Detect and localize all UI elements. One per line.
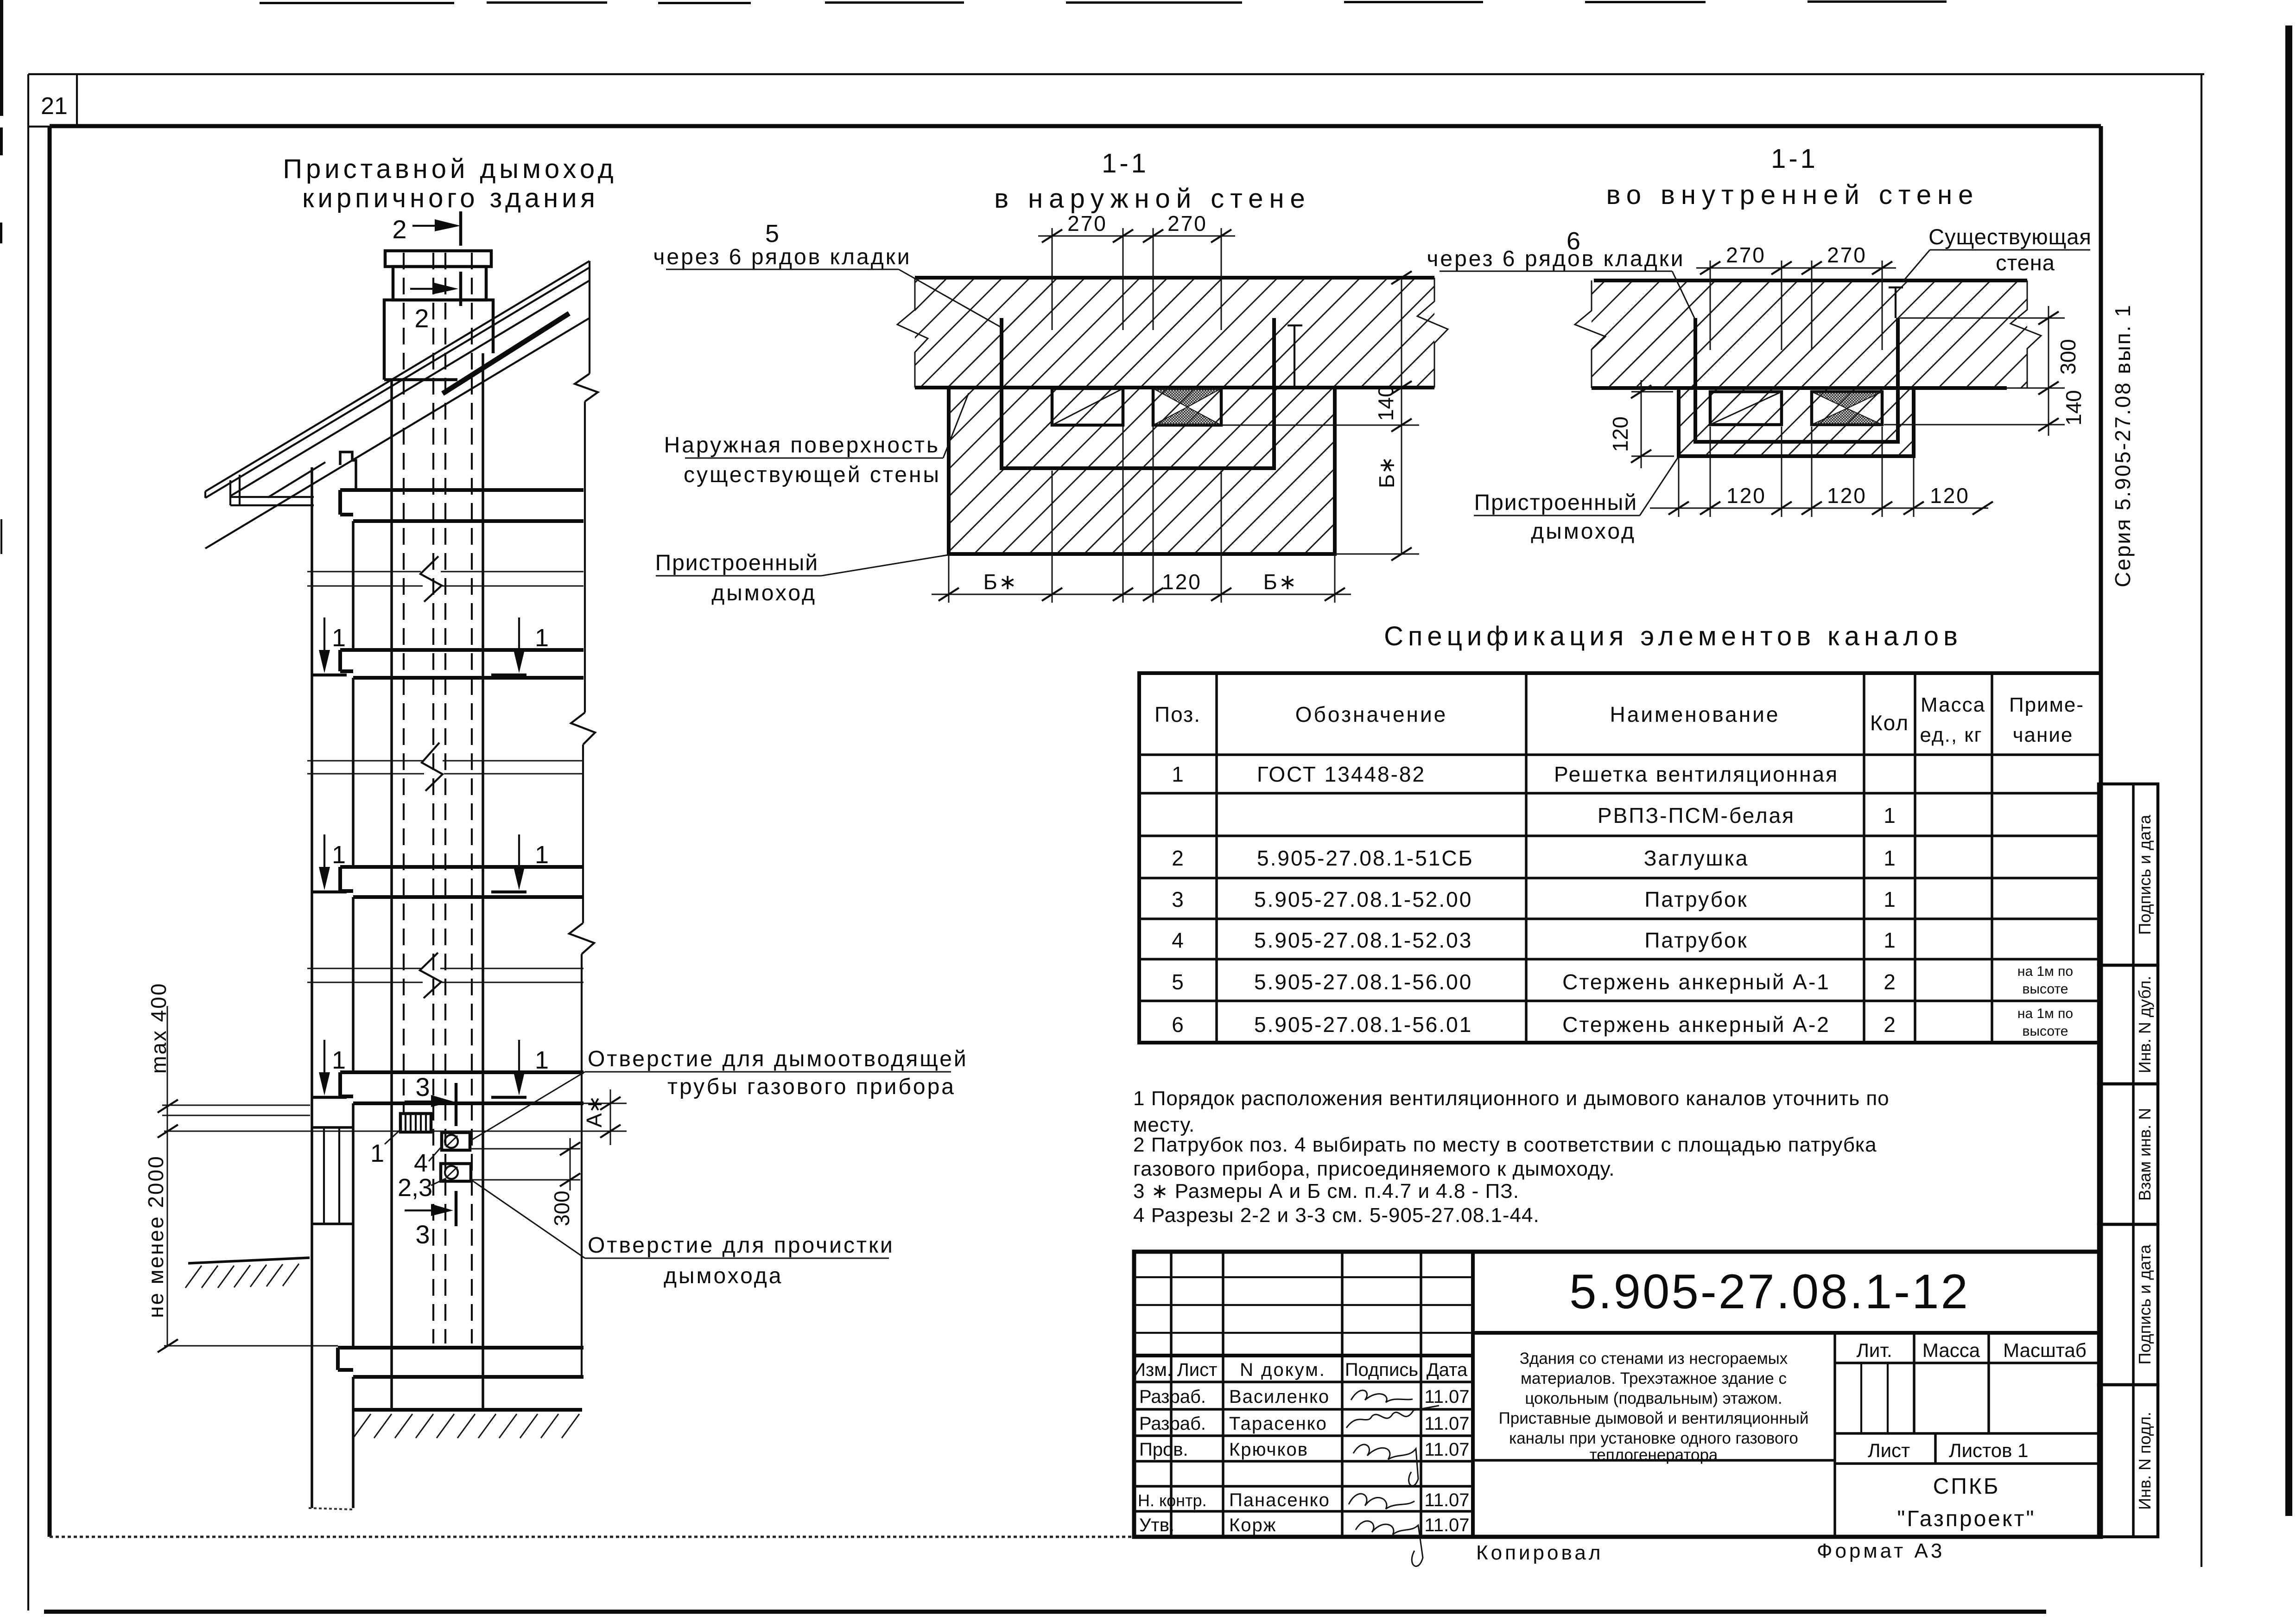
svg-text:Корж: Корж <box>1229 1515 1277 1535</box>
svg-text:дымоход: дымоход <box>711 581 817 605</box>
svg-text:11.07: 11.07 <box>1424 1515 1469 1535</box>
svg-text:120: 120 <box>1162 570 1202 594</box>
svg-text:Разраб.: Разраб. <box>1139 1387 1206 1407</box>
svg-text:1-1: 1-1 <box>1102 148 1149 178</box>
svg-text:высоте: высоте <box>2023 1024 2068 1039</box>
svg-text:Серия 5.905-27.08 вып. 1: Серия 5.905-27.08 вып. 1 <box>2111 304 2135 587</box>
svg-text:кирпичного здания: кирпичного здания <box>302 183 599 213</box>
svg-text:через 6 рядов кладки: через 6 рядов кладки <box>653 245 911 269</box>
svg-text:270: 270 <box>1726 243 1766 267</box>
svg-text:4: 4 <box>1172 928 1184 952</box>
svg-text:Крючков: Крючков <box>1229 1439 1308 1460</box>
svg-text:Подпись и дата: Подпись и дата <box>2135 1244 2154 1365</box>
svg-text:А∗: А∗ <box>582 1095 606 1127</box>
svg-text:Копировал: Копировал <box>1476 1541 1603 1564</box>
svg-text:не менее 2000: не менее 2000 <box>144 1155 168 1318</box>
svg-text:через 6 рядов кладки: через 6 рядов кладки <box>1427 247 1685 271</box>
svg-text:Спецификация элементов каналов: Спецификация элементов каналов <box>1384 621 1962 651</box>
svg-text:"Газпроект": "Газпроект" <box>1897 1507 2036 1531</box>
svg-text:на 1м по: на 1м по <box>2017 964 2073 979</box>
svg-text:Отверстие для прочистки: Отверстие для прочистки <box>588 1233 894 1258</box>
svg-text:2,3: 2,3 <box>398 1174 432 1202</box>
svg-text:Масса: Масса <box>1921 694 1985 716</box>
svg-text:5.905-27.08.1-56.00: 5.905-27.08.1-56.00 <box>1254 970 1472 994</box>
svg-text:1: 1 <box>535 1046 549 1074</box>
svg-text:Кол: Кол <box>1870 711 1909 735</box>
svg-text:Формат А3: Формат А3 <box>1817 1540 1945 1562</box>
svg-text:Листов 1: Листов 1 <box>1949 1439 2029 1461</box>
svg-text:1: 1 <box>332 1046 346 1074</box>
svg-text:чание: чание <box>2013 724 2074 746</box>
svg-text:11.07: 11.07 <box>1424 1490 1469 1510</box>
svg-text:Приме-: Приме- <box>2009 694 2084 716</box>
svg-text:Наименование: Наименование <box>1610 702 1780 726</box>
svg-text:1: 1 <box>1884 803 1896 828</box>
svg-text:Лит.: Лит. <box>1856 1339 1892 1361</box>
svg-text:Обозначение: Обозначение <box>1295 702 1448 726</box>
svg-text:Решетка вентиляционная: Решетка вентиляционная <box>1554 762 1839 786</box>
svg-text:5: 5 <box>765 220 779 248</box>
svg-text:газового прибора, присоединя: газового прибора, присоединяемого к дымо… <box>1133 1158 1615 1180</box>
svg-text:месту.: месту. <box>1133 1114 1195 1136</box>
svg-text:1: 1 <box>1884 887 1896 911</box>
svg-text:270: 270 <box>1827 243 1867 267</box>
svg-text:Б∗: Б∗ <box>1263 570 1298 594</box>
svg-text:140: 140 <box>1374 385 1398 421</box>
svg-text:Патрубок: Патрубок <box>1644 887 1748 911</box>
svg-text:Стержень анкерный А-1: Стержень анкерный А-1 <box>1562 970 1830 994</box>
svg-text:4: 4 <box>414 1149 428 1177</box>
svg-text:5.905-27.08.1-12: 5.905-27.08.1-12 <box>1569 1265 1970 1319</box>
svg-text:Стержень анкерный А-2: Стержень анкерный А-2 <box>1562 1012 1830 1037</box>
svg-text:Приставной дымоход: Приставной дымоход <box>283 154 617 184</box>
svg-text:140: 140 <box>2061 390 2086 426</box>
svg-text:11.07: 11.07 <box>1424 1439 1469 1460</box>
svg-text:существующей стены: существующей стены <box>684 463 941 487</box>
svg-text:3 ∗ Размеры А и Б см. п: 3 ∗ Размеры А и Б см. п.4.7 и 4.8 - ПЗ. <box>1133 1180 1519 1203</box>
svg-text:Пров.: Пров. <box>1139 1439 1188 1460</box>
svg-text:6: 6 <box>1172 1012 1184 1037</box>
svg-text:во внутренней стене: во внутренней стене <box>1606 180 1979 210</box>
svg-text:на 1м по: на 1м по <box>2017 1006 2073 1021</box>
svg-text:Подпись и дата: Подпись и дата <box>2135 815 2154 935</box>
svg-text:Б∗: Б∗ <box>1375 456 1399 488</box>
svg-text:дымоход: дымоход <box>1531 519 1636 544</box>
svg-text:стена: стена <box>1996 250 2055 275</box>
svg-text:Пристроенный: Пристроенный <box>655 551 818 575</box>
svg-text:Поз.: Поз. <box>1154 702 1201 726</box>
svg-text:11.07: 11.07 <box>1424 1413 1469 1434</box>
svg-text:120: 120 <box>1827 484 1867 508</box>
svg-text:1: 1 <box>1884 846 1896 870</box>
svg-text:Лист: Лист <box>1177 1360 1218 1380</box>
svg-text:РВПЗ-ПСМ-белая: РВПЗ-ПСМ-белая <box>1598 803 1795 828</box>
svg-text:трубы газового прибора: трубы газового прибора <box>667 1075 956 1099</box>
svg-text:Дата: Дата <box>1427 1360 1468 1380</box>
svg-text:Разраб.: Разраб. <box>1139 1413 1206 1434</box>
svg-text:120: 120 <box>1726 484 1766 508</box>
svg-text:1: 1 <box>332 841 346 869</box>
svg-text:5.905-27.08.1-52.03: 5.905-27.08.1-52.03 <box>1254 928 1472 952</box>
svg-text:Б∗: Б∗ <box>983 570 1018 594</box>
svg-text:высоте: высоте <box>2023 981 2068 997</box>
svg-text:N докум.: N докум. <box>1240 1360 1326 1380</box>
svg-text:Инв. N дубл.: Инв. N дубл. <box>2135 976 2154 1073</box>
svg-text:120: 120 <box>1930 484 1970 508</box>
svg-text:ед., кг: ед., кг <box>1920 724 1982 746</box>
svg-text:300: 300 <box>2056 339 2080 375</box>
svg-text:5.905-27.08.1-52.00: 5.905-27.08.1-52.00 <box>1254 887 1472 911</box>
svg-text:Наружная поверхность: Наружная поверхность <box>664 433 940 458</box>
svg-text:21: 21 <box>41 93 68 120</box>
svg-text:1 Порядок расположения вент: 1 Порядок расположения вентиляционного и… <box>1133 1087 1890 1110</box>
svg-text:дымохода: дымохода <box>664 1264 783 1288</box>
svg-text:Патрубок: Патрубок <box>1644 928 1748 952</box>
svg-text:Масштаб: Масштаб <box>2003 1339 2087 1361</box>
svg-text:материалов. Трехэтажное здание: материалов. Трехэтажное здание с <box>1521 1369 1787 1388</box>
svg-text:1: 1 <box>535 841 549 869</box>
svg-text:5.905-27.08.1-51СБ: 5.905-27.08.1-51СБ <box>1257 846 1474 870</box>
svg-text:5: 5 <box>1172 970 1184 994</box>
svg-text:2: 2 <box>1884 970 1896 994</box>
svg-text:Приставные дымовой и вентиляци: Приставные дымовой и вентиляционный <box>1499 1409 1809 1427</box>
svg-text:Заглушка: Заглушка <box>1644 846 1749 870</box>
svg-text:Пристроенный: Пристроенный <box>1474 490 1637 515</box>
svg-text:2: 2 <box>1172 846 1184 870</box>
svg-text:120: 120 <box>1608 416 1632 452</box>
svg-text:каналы при установке одного га: каналы при установке одного газового <box>1509 1429 1798 1447</box>
svg-text:1-1: 1-1 <box>1771 144 1818 174</box>
svg-text:Отверстие для дымоотводящей: Отверстие для дымоотводящей <box>588 1047 968 1071</box>
svg-text:1: 1 <box>535 624 549 652</box>
svg-text:5.905-27.08.1-56.01: 5.905-27.08.1-56.01 <box>1254 1012 1472 1037</box>
svg-text:11.07: 11.07 <box>1424 1387 1469 1407</box>
svg-text:4 Разрезы 2-2 и 3-3 см.: 4 Разрезы 2-2 и 3-3 см. 5-905-27.08.1-44… <box>1133 1204 1540 1227</box>
svg-text:1: 1 <box>370 1140 384 1167</box>
svg-text:2: 2 <box>1884 1012 1896 1037</box>
svg-text:Подпись: Подпись <box>1345 1360 1418 1380</box>
svg-text:3: 3 <box>415 1220 430 1249</box>
svg-text:1: 1 <box>332 624 346 652</box>
svg-text:Н. контр.: Н. контр. <box>1138 1491 1207 1510</box>
svg-text:Взам инв. N: Взам инв. N <box>2135 1108 2154 1201</box>
svg-text:3: 3 <box>415 1072 430 1101</box>
svg-text:в наружной стене: в наружной стене <box>994 184 1311 214</box>
svg-text:Тарасенко: Тарасенко <box>1229 1413 1327 1434</box>
svg-text:3: 3 <box>1172 887 1184 911</box>
svg-text:2: 2 <box>392 215 406 244</box>
svg-text:Существующая: Существующая <box>1928 224 2092 249</box>
svg-text:1: 1 <box>1172 762 1184 786</box>
svg-text:цокольным (подвальным) этажом.: цокольным (подвальным) этажом. <box>1525 1389 1782 1407</box>
svg-text:Инв. N подл.: Инв. N подл. <box>2135 1412 2154 1510</box>
svg-text:2: 2 <box>414 304 429 333</box>
svg-text:СПКБ: СПКБ <box>1933 1474 2000 1499</box>
svg-text:Лист: Лист <box>1868 1439 1910 1461</box>
svg-text:теплогенератора: теплогенератора <box>1590 1446 1718 1464</box>
svg-text:Масса: Масса <box>1922 1339 1980 1361</box>
svg-text:1: 1 <box>1884 928 1896 952</box>
svg-text:270: 270 <box>1167 211 1207 236</box>
svg-text:270: 270 <box>1067 211 1107 236</box>
svg-text:Василенко: Василенко <box>1229 1387 1330 1407</box>
svg-text:Изм.: Изм. <box>1132 1360 1172 1380</box>
svg-text:2 Патрубок поз. 4 выбирать: 2 Патрубок поз. 4 выбирать по месту в со… <box>1133 1133 1877 1156</box>
svg-text:Утв.: Утв. <box>1139 1515 1174 1535</box>
svg-text:Здания со стенами из несгораем: Здания со стенами из несгораемых <box>1520 1350 1788 1368</box>
svg-text:300: 300 <box>550 1190 574 1226</box>
svg-text:Панасенко: Панасенко <box>1229 1490 1330 1510</box>
svg-text:ГОСТ 13448-82: ГОСТ 13448-82 <box>1257 762 1426 786</box>
